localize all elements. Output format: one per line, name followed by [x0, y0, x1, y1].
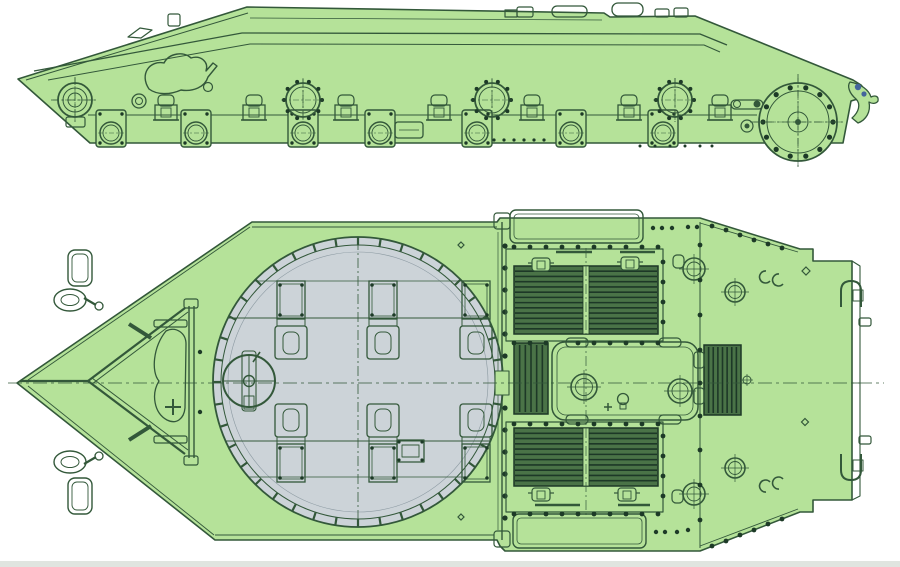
edge-bolts: [752, 238, 757, 243]
troop-seat-pin: [370, 313, 374, 317]
road-wheel-mount-bolt: [367, 112, 370, 115]
hull-side-hatch-bolt: [679, 80, 683, 84]
troop-seat-pin: [392, 283, 396, 287]
turret-ring-bolts: [379, 517, 380, 525]
hull-side-hatch-bolt: [484, 80, 488, 84]
frame-bolts: [576, 341, 581, 346]
drive-sprocket-bolt: [764, 104, 769, 109]
troop-seat-pin: [370, 283, 374, 287]
troop-seat-pin: [463, 283, 467, 287]
turret-ring-bolts: [215, 359, 223, 360]
drive-sprocket-bolt: [788, 85, 793, 90]
drive-sprocket-bolt: [774, 147, 779, 152]
road-wheel-mount-bolt: [98, 112, 101, 115]
road-wheel-mount-bolt: [120, 112, 123, 115]
road-wheel-mount-bolt: [486, 141, 489, 144]
rear-stub: [859, 436, 871, 444]
frame-bolts: [661, 454, 666, 459]
road-wheel-mount-bolt: [389, 141, 392, 144]
frame-bolts: [528, 422, 533, 427]
troop-seat-pin: [463, 313, 467, 317]
frame-bolts: [661, 300, 666, 305]
frame-bolts: [608, 512, 613, 517]
troop-seat-pin: [463, 446, 467, 450]
bulkhead-bolts: [502, 449, 507, 454]
frame-bolts: [661, 280, 666, 285]
hull-rivets: [542, 138, 545, 141]
troop-seat-pin: [485, 476, 489, 480]
hull-side-hatch-bolt: [295, 116, 299, 120]
bulkhead-bolts: [502, 427, 507, 432]
hull-side-hatch-bolt: [307, 116, 311, 120]
frame-bolts: [661, 320, 666, 325]
frame-bolts: [592, 512, 597, 517]
hull-rivets: [639, 145, 642, 148]
drive-sprocket-bolt: [817, 92, 822, 97]
bow-vane: [128, 28, 152, 38]
road-wheel-mount-bolt: [205, 141, 208, 144]
hull-rivets: [502, 138, 505, 141]
road-wheel-mount-bolt: [290, 141, 293, 144]
road-wheel-mount-bolt: [312, 141, 315, 144]
frame-bolts: [544, 245, 549, 250]
road-wheel-mount-bolt: [367, 141, 370, 144]
frame-bolts: [544, 341, 549, 346]
bulkhead-bolts: [502, 265, 507, 270]
hull-side-hatch-bolt: [505, 109, 509, 113]
road-wheel-mount-bolt: [650, 112, 653, 115]
road-wheel-mount-bolt: [650, 141, 653, 144]
edge-bolts: [738, 533, 743, 538]
frame-bolts: [576, 512, 581, 517]
frame-bolts: [661, 494, 666, 499]
frame-bolts: [608, 245, 613, 250]
deck-bolts: [686, 225, 690, 229]
frame-bolts: [656, 245, 661, 250]
troop-seat-pin: [278, 446, 282, 450]
hull-side-hatch-bolt: [307, 80, 311, 84]
frame-bolts: [544, 512, 549, 517]
hull-side-hatch-bolt: [658, 109, 662, 113]
hull-rivets: [711, 145, 714, 148]
tow-hook: [54, 289, 86, 311]
frame-bolts: [592, 422, 597, 427]
hull-side-hatch-bolt: [679, 116, 683, 120]
troop-seat-pin: [392, 446, 396, 450]
wall-bolts: [698, 278, 703, 283]
hull-rivets: [492, 138, 495, 141]
bow-bolts: [198, 410, 202, 414]
frame-bolts: [528, 512, 533, 517]
hull-rivets: [512, 138, 515, 141]
troop-seat-pin: [463, 476, 467, 480]
road-wheel-mount-bolt: [183, 141, 186, 144]
troop-seat-pin: [485, 283, 489, 287]
hull-side-hatch-bolt: [286, 87, 290, 91]
deck-bolts: [695, 225, 699, 229]
frame-bolts: [512, 341, 517, 346]
bulkhead-bolts: [502, 243, 507, 248]
rear-fitting-blue: [861, 91, 866, 96]
hull-plug-hub: [745, 124, 750, 129]
drive-sprocket-bolt: [774, 92, 779, 97]
troop-seat-pin: [278, 283, 282, 287]
troop-seat-pin: [392, 476, 396, 480]
troop-seat-pin: [300, 283, 304, 287]
tow-hook-inner: [61, 457, 79, 468]
frame-bolts: [544, 422, 549, 427]
frame-bolts: [624, 341, 629, 346]
deck-bolts: [654, 530, 658, 534]
periscope: [168, 14, 180, 26]
frame-bolts: [512, 245, 517, 250]
hull-rivets: [684, 145, 687, 148]
hull-side-hatch-bolt: [658, 87, 662, 91]
frame-bolts: [656, 422, 661, 427]
hull-side-hatch-bolt: [316, 87, 320, 91]
edge-bolts: [752, 528, 757, 533]
hull-side-hatch-bolt: [316, 109, 320, 113]
hull-side-hatch-bolt: [496, 80, 500, 84]
frame-bolts: [656, 341, 661, 346]
frame-bolts: [640, 341, 645, 346]
troop-seat-pin: [278, 476, 282, 480]
frame-bolts: [608, 341, 613, 346]
frame-bolts: [640, 245, 645, 250]
frame-bolts: [528, 341, 533, 346]
tow-bracket-inner: [72, 482, 88, 510]
road-wheel-mount-bolt: [120, 141, 123, 144]
drive-sprocket-bolt: [803, 85, 808, 90]
hull-side-hatch-bolt: [475, 87, 479, 91]
frame-bolts: [528, 245, 533, 250]
frame-bolts: [592, 245, 597, 250]
hull-rivets: [532, 138, 535, 141]
wall-bolts: [698, 448, 703, 453]
drive-sprocket-bolt: [827, 104, 832, 109]
road-wheel-mount-bolt: [183, 112, 186, 115]
road-wheel-mount-bolt: [580, 112, 583, 115]
wall-bolts: [698, 483, 703, 488]
hull-side-hatch-bolt: [667, 80, 671, 84]
frame-bolts: [640, 422, 645, 427]
deck-bolts: [660, 226, 664, 230]
crew-table-legs: [397, 440, 400, 443]
deck-bolts: [686, 528, 690, 532]
hull-side-hatch-bolt: [688, 109, 692, 113]
deck-bolts: [663, 530, 667, 534]
frame-bolts: [661, 474, 666, 479]
frame-bolts: [624, 512, 629, 517]
bulkhead-bolts: [502, 405, 507, 410]
road-wheel-mount-bolt: [389, 112, 392, 115]
crew-table-legs: [420, 458, 423, 461]
edge-bolts: [780, 246, 785, 251]
turret-ring-bolts: [493, 403, 501, 404]
technical-drawing-page: [0, 0, 900, 567]
bulkhead-bolts: [502, 353, 507, 358]
bulkhead-bolts: [502, 309, 507, 314]
drive-sprocket-bolt: [827, 135, 832, 140]
plan-view: [0, 210, 900, 567]
drive-sprocket-bolt: [817, 147, 822, 152]
frame-bolts: [560, 422, 565, 427]
troop-seat-pin: [300, 313, 304, 317]
wall-bolts: [698, 348, 703, 353]
road-wheel-mount-bolt: [580, 141, 583, 144]
troop-seat-pin: [485, 313, 489, 317]
hull-side-hatch-bolt: [505, 87, 509, 91]
tow-hook-eye: [95, 302, 103, 310]
edge-bolts: [766, 242, 771, 247]
frame-bolts: [512, 422, 517, 427]
frame-bolts: [608, 422, 613, 427]
frame-bolts: [661, 434, 666, 439]
drive-sprocket-bolt: [764, 135, 769, 140]
troop-seat-pin: [300, 446, 304, 450]
frame-bolts: [656, 512, 661, 517]
rear-stub: [859, 318, 871, 326]
deck-bolts: [651, 226, 655, 230]
troop-seat-pin: [300, 476, 304, 480]
hull-side-hatch-bolt: [496, 116, 500, 120]
edge-bolts: [724, 539, 729, 544]
edge-bolts: [724, 228, 729, 233]
scan-edge-strip: [0, 561, 900, 567]
crew-table-legs: [397, 458, 400, 461]
turret-ring-bolts: [215, 403, 223, 404]
edge-bolts: [710, 544, 715, 549]
frame-bolts: [560, 512, 565, 517]
hull-side-hatch-bolt: [295, 80, 299, 84]
bulkhead-bolts: [502, 331, 507, 336]
turret-ring-bolts: [335, 517, 336, 525]
blueprint-canvas: [0, 0, 900, 567]
wall-bolts: [698, 518, 703, 523]
frame-bolts: [661, 260, 666, 265]
road-wheel-mount-bolt: [558, 112, 561, 115]
roof-hatch: [612, 3, 643, 16]
frame-bolts: [576, 245, 581, 250]
drive-sprocket-bolt: [788, 154, 793, 159]
frame-bolts: [624, 422, 629, 427]
frame-bolts: [624, 245, 629, 250]
hull-side-hatch-bolt: [688, 87, 692, 91]
tow-hook: [54, 451, 86, 473]
side-view: [18, 3, 878, 170]
deck-bolts: [670, 226, 674, 230]
frame-bolts: [592, 341, 597, 346]
hull-side-hatch-bolt: [484, 116, 488, 120]
frame-bolts: [576, 422, 581, 427]
troop-seat-pin: [370, 446, 374, 450]
edge-bolts: [738, 233, 743, 238]
hull-side-hatch-bolt: [667, 116, 671, 120]
bulkhead-bolts: [502, 493, 507, 498]
bulkhead-bolts: [502, 471, 507, 476]
edge-bolts: [710, 224, 715, 229]
road-wheel-mount-bolt: [98, 141, 101, 144]
bulkhead-bolts: [502, 515, 507, 520]
troop-seat-pin: [392, 313, 396, 317]
tow-bracket-inner: [72, 254, 88, 282]
wall-bolts: [698, 414, 703, 419]
tow-hook-inner: [61, 295, 79, 306]
road-wheel-mount-bolt: [672, 141, 675, 144]
road-wheel-mount-bolt: [464, 112, 467, 115]
wall-bolts: [698, 313, 703, 318]
rear-mudguard-hook: [849, 82, 879, 123]
troop-seat-pin: [485, 446, 489, 450]
wall-bolts: [698, 243, 703, 248]
link-pin: [754, 101, 761, 108]
turret-ring-bolts: [379, 239, 380, 247]
hull-rivets: [522, 138, 525, 141]
edge-bolts: [780, 517, 785, 522]
frame-bolts: [512, 512, 517, 517]
frame-bolts: [640, 512, 645, 517]
hull-rivets: [654, 145, 657, 148]
bulkhead-bolts: [502, 287, 507, 292]
troop-seat-pin: [370, 476, 374, 480]
turret-ring-bolts: [335, 239, 336, 247]
troop-seat-pin: [278, 313, 282, 317]
road-wheel-mount-bolt: [464, 141, 467, 144]
hull-side-hatch-bolt: [286, 109, 290, 113]
hull-rivets: [699, 145, 702, 148]
turret-ring-bolts: [493, 359, 501, 360]
crew-table-legs: [420, 440, 423, 443]
rear-fitting-blue: [855, 84, 861, 90]
frame-bolts: [560, 245, 565, 250]
drive-sprocket-bolt: [803, 154, 808, 159]
road-wheel-mount-bolt: [558, 141, 561, 144]
deck-bolts: [675, 530, 679, 534]
bow-bolts: [198, 350, 202, 354]
tow-hook-eye: [95, 452, 103, 460]
hull-side-hatch-bolt: [475, 109, 479, 113]
hull-rivets: [669, 145, 672, 148]
road-wheel-mount-bolt: [205, 112, 208, 115]
edge-bolts: [766, 522, 771, 527]
